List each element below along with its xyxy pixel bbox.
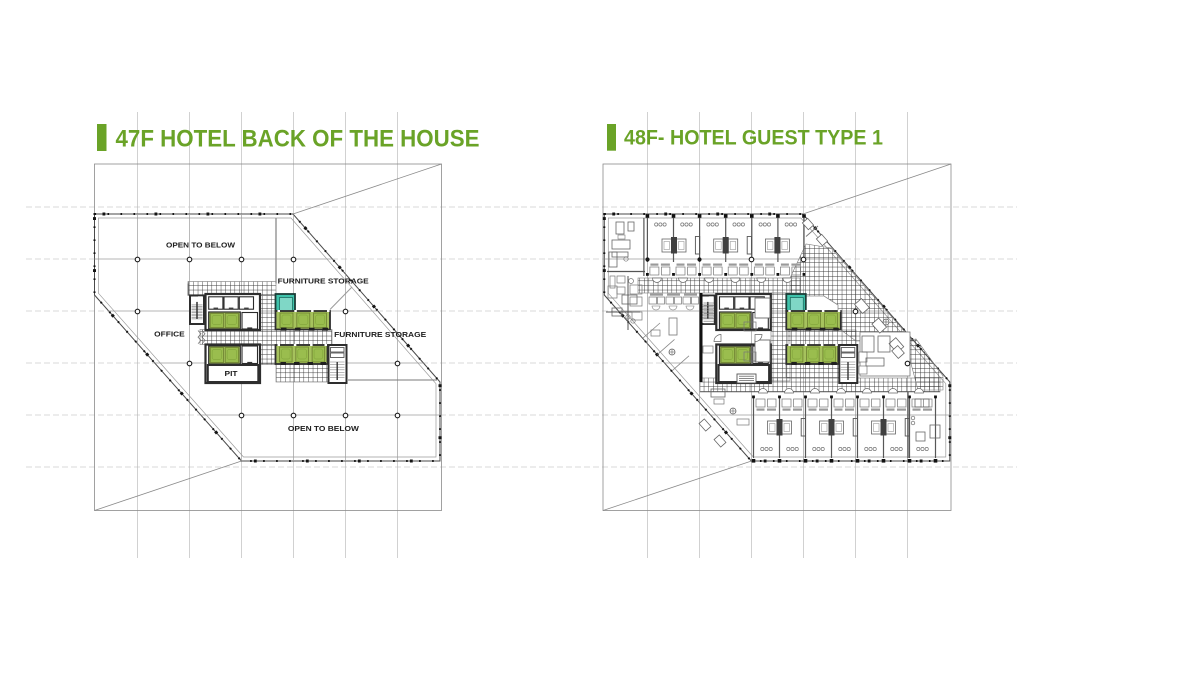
svg-text:FURNITURE STORAGE: FURNITURE STORAGE bbox=[278, 278, 369, 285]
svg-text:OPEN TO BELOW: OPEN TO BELOW bbox=[288, 426, 359, 433]
svg-text:48F- HOTEL GUEST TYPE 1: 48F- HOTEL GUEST TYPE 1 bbox=[624, 126, 883, 150]
svg-text:47F HOTEL BACK OF THE HOUSE: 47F HOTEL BACK OF THE HOUSE bbox=[116, 126, 480, 153]
svg-text:PIT: PIT bbox=[225, 369, 238, 378]
svg-text:OPEN TO BELOW: OPEN TO BELOW bbox=[166, 243, 235, 250]
svg-text:OFFICE: OFFICE bbox=[154, 332, 185, 339]
svg-text:FURNITURE STORAGE: FURNITURE STORAGE bbox=[334, 332, 426, 339]
